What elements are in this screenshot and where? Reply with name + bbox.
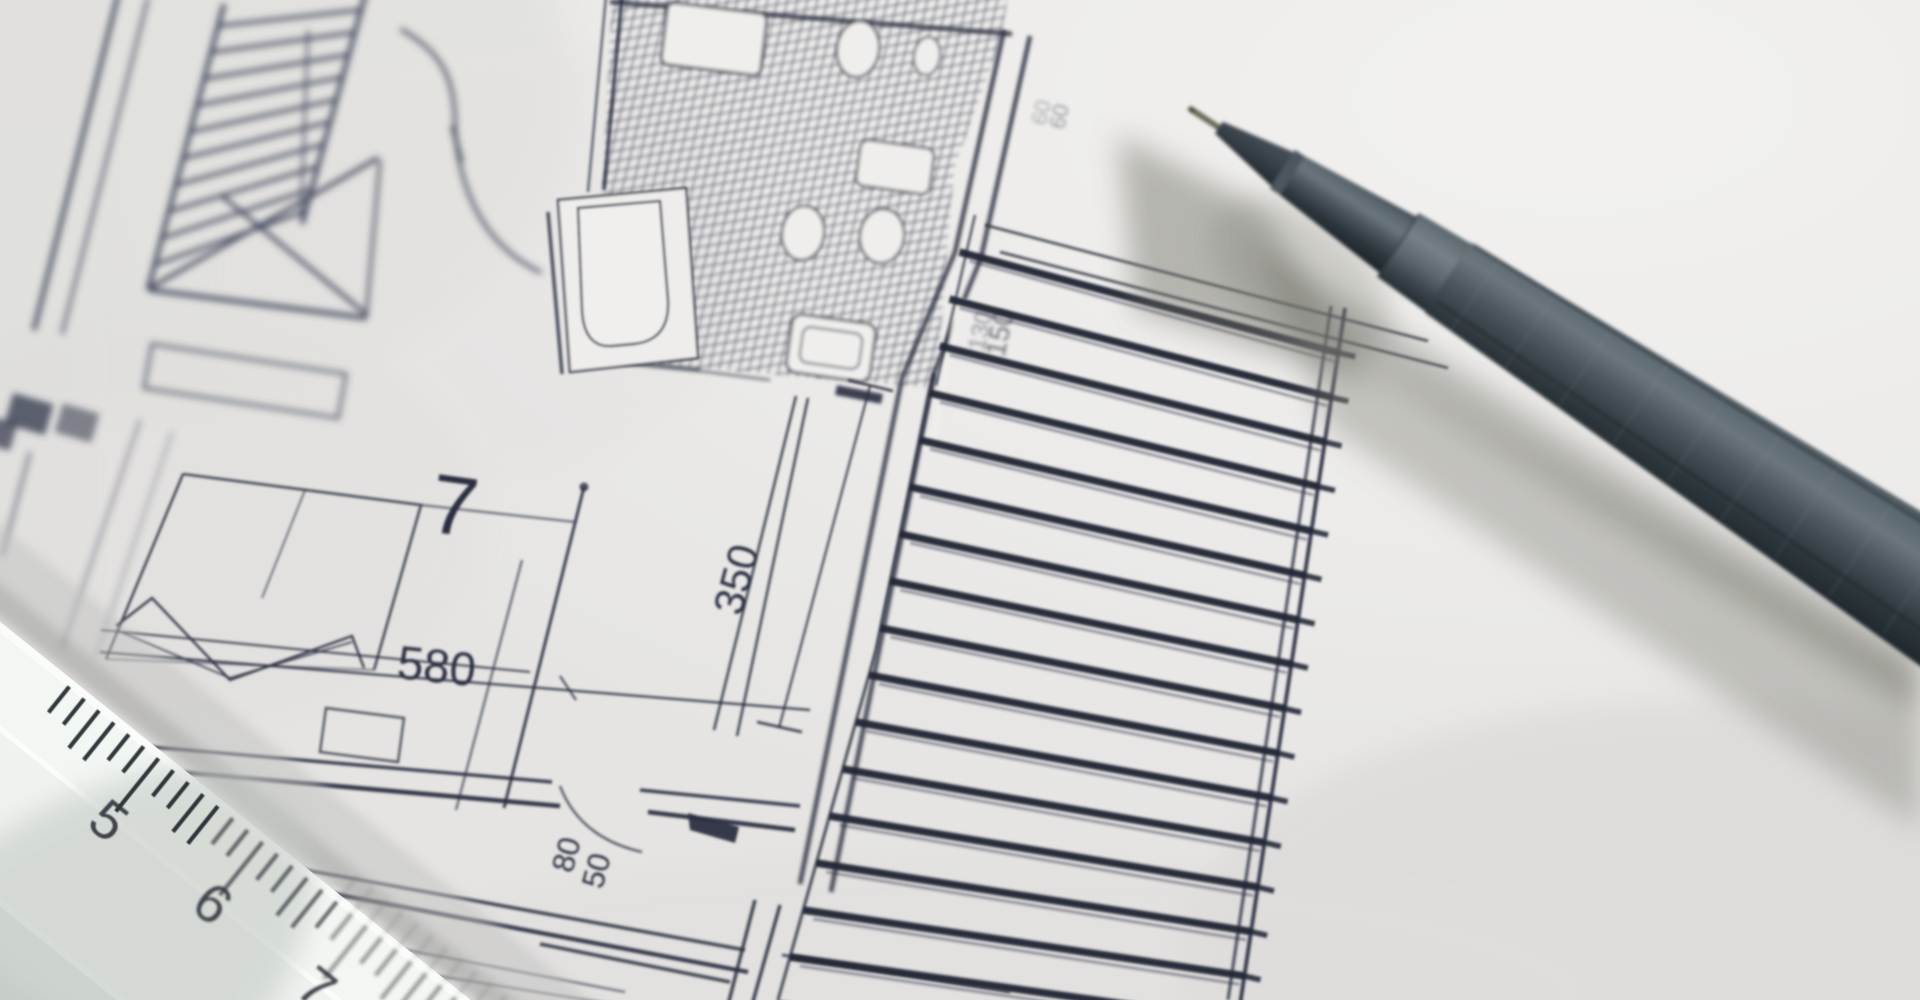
svg-text:580: 580 [395,635,479,696]
svg-text:60: 60 [1026,98,1056,127]
